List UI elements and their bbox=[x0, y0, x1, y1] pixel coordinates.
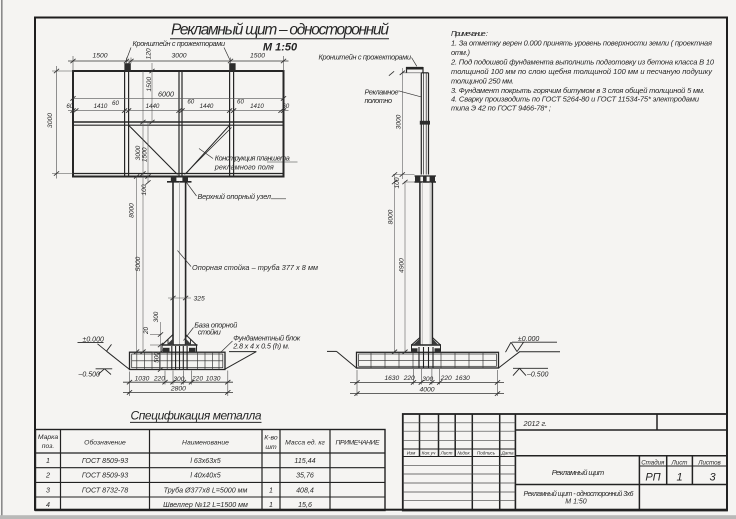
svg-text:220: 220 bbox=[153, 375, 165, 382]
svg-text:ГОСТ 8509-93: ГОСТ 8509-93 bbox=[82, 472, 128, 480]
svg-text:60: 60 bbox=[187, 99, 194, 106]
svg-text:115,44: 115,44 bbox=[294, 457, 315, 465]
svg-text:60: 60 bbox=[282, 103, 289, 110]
svg-text:15,6: 15,6 bbox=[298, 501, 312, 509]
svg-text:2800: 2800 bbox=[170, 386, 186, 393]
svg-text:Наименование: Наименование bbox=[182, 440, 229, 447]
svg-text:60: 60 bbox=[112, 100, 119, 107]
svg-text:Примечание :: Примечание : bbox=[451, 29, 488, 38]
svg-text:8000: 8000 bbox=[388, 209, 395, 224]
svg-text:1: 1 bbox=[676, 472, 682, 484]
svg-text:100: 100 bbox=[394, 177, 401, 188]
svg-text:Стадия: Стадия bbox=[641, 459, 665, 466]
svg-text:1500: 1500 bbox=[141, 147, 148, 162]
svg-text:100: 100 bbox=[141, 184, 148, 195]
svg-text:4000: 4000 bbox=[419, 387, 434, 394]
svg-text:1: 1 bbox=[46, 457, 50, 465]
svg-text:l 63х63х5: l 63х63х5 bbox=[190, 457, 220, 465]
svg-text:толщиной 250 мм.: толщиной 250 мм. bbox=[451, 76, 514, 85]
svg-text:3: 3 bbox=[46, 486, 50, 494]
svg-text:поз.: поз. bbox=[42, 443, 55, 450]
svg-text:1. За отметку верен 0.000 пр: 1. За отметку верен 0.000 принять уровен… bbox=[451, 38, 712, 47]
svg-text:3000: 3000 bbox=[47, 113, 54, 128]
svg-text:Спецификация металла: Спецификация металла bbox=[131, 409, 262, 423]
svg-text:2012 г.: 2012 г. bbox=[523, 419, 548, 428]
svg-text:№док: №док bbox=[457, 450, 470, 455]
svg-text:1: 1 bbox=[269, 486, 273, 494]
svg-text:1630: 1630 bbox=[384, 375, 399, 382]
svg-text:2. Под подошвой фундамента вып: 2. Под подошвой фундамента выполнить под… bbox=[450, 57, 715, 66]
svg-text:220: 220 bbox=[403, 375, 415, 382]
svg-text:300: 300 bbox=[422, 376, 433, 383]
svg-text:–0.500: –0.500 bbox=[78, 371, 101, 378]
svg-text:стойки: стойки bbox=[198, 327, 221, 336]
svg-text:Лист: Лист bbox=[440, 450, 453, 455]
svg-text:Рекламный щит – односторонни: Рекламный щит – односторонний bbox=[171, 22, 389, 39]
svg-text:толщиной 100 мм по слою щ: толщиной 100 мм по слою щебня толщиной 1… bbox=[451, 67, 713, 76]
svg-text:3: 3 bbox=[709, 472, 716, 484]
svg-text:Конструкция планшета: Конструкция планшета bbox=[215, 154, 290, 163]
svg-text:300: 300 bbox=[153, 311, 160, 322]
svg-text:220: 220 bbox=[191, 375, 203, 382]
svg-text:1630: 1630 bbox=[455, 375, 470, 382]
svg-text:Труба Ø377х8 L=5000 мм: Труба Ø377х8 L=5000 мм bbox=[164, 486, 248, 494]
svg-text:отм.): отм.) bbox=[451, 48, 471, 57]
svg-text:1030: 1030 bbox=[135, 375, 150, 382]
svg-text:6000: 6000 bbox=[158, 90, 174, 99]
svg-text:К-во: К-во bbox=[264, 435, 278, 442]
svg-text:1440: 1440 bbox=[146, 103, 160, 110]
svg-text:Швеллер №12 L=1500 мм: Швеллер №12 L=1500 мм bbox=[163, 501, 248, 509]
svg-text:Изм: Изм bbox=[407, 450, 416, 455]
svg-text:3000: 3000 bbox=[395, 114, 402, 129]
svg-text:2.8 х 4 х 0.5 (h) м.: 2.8 х 4 х 0.5 (h) м. bbox=[232, 341, 290, 350]
svg-text:1: 1 bbox=[269, 501, 273, 509]
svg-text:325: 325 bbox=[194, 296, 206, 303]
svg-text:3. Фундамент покрыть горячим: 3. Фундамент покрыть горячим битумом в 3… bbox=[451, 86, 705, 95]
svg-text:полотно: полотно bbox=[365, 96, 393, 105]
svg-text:20: 20 bbox=[143, 327, 150, 336]
svg-text:Марка: Марка bbox=[38, 434, 59, 441]
svg-text:Подпись: Подпись bbox=[477, 450, 496, 455]
svg-text:Кол.уч: Кол.уч bbox=[422, 450, 436, 455]
svg-text:рекламного поля: рекламного поля bbox=[214, 163, 274, 172]
svg-text:1500: 1500 bbox=[146, 77, 153, 92]
svg-text:шт: шт bbox=[265, 444, 277, 451]
svg-text:–0.500: –0.500 bbox=[526, 371, 549, 378]
svg-text:60: 60 bbox=[66, 103, 73, 110]
svg-text:2: 2 bbox=[45, 472, 50, 480]
svg-text:М 1:50: М 1:50 bbox=[263, 42, 298, 54]
svg-text:8000: 8000 bbox=[129, 203, 136, 218]
svg-text:120: 120 bbox=[145, 48, 152, 59]
svg-text:4. Сварку производить по ГО: 4. Сварку производить по ГОСТ 5264-80 и … bbox=[451, 95, 700, 104]
svg-text:500: 500 bbox=[153, 352, 160, 363]
svg-text:Рекламный щит - односторонний: Рекламный щит - односторонний 3х6 bbox=[524, 490, 634, 498]
svg-text:Верхний опорный узел: Верхний опорный узел bbox=[198, 192, 272, 201]
svg-text:220: 220 bbox=[440, 375, 452, 382]
svg-text:±0.000: ±0.000 bbox=[518, 336, 539, 343]
svg-text:Кронштейн с прожекторами: Кронштейн с прожекторами bbox=[319, 53, 412, 62]
svg-text:Кронштейн с прожекторами: Кронштейн с прожекторами bbox=[133, 39, 226, 48]
svg-text:ГОСТ 8732-78: ГОСТ 8732-78 bbox=[82, 486, 128, 494]
svg-text:1410: 1410 bbox=[250, 103, 264, 110]
svg-text:60: 60 bbox=[237, 99, 244, 106]
svg-text:300: 300 bbox=[173, 376, 184, 383]
svg-text:Опорная стойка – труба 377 х: Опорная стойка – труба 377 х 8 мм bbox=[192, 263, 318, 272]
svg-text:3000: 3000 bbox=[171, 53, 186, 60]
svg-text:35,76: 35,76 bbox=[296, 472, 314, 480]
svg-text:l 40х40х5: l 40х40х5 bbox=[190, 472, 220, 480]
svg-text:типа Э 42 по ГОСТ 9466-78: типа Э 42 по ГОСТ 9466-78* ; bbox=[451, 103, 551, 112]
svg-text:Обозначение: Обозначение bbox=[84, 439, 126, 447]
svg-text:5000: 5000 bbox=[135, 256, 142, 271]
svg-text:4: 4 bbox=[46, 501, 50, 509]
svg-text:Масса ед. кг: Масса ед. кг bbox=[285, 439, 325, 447]
svg-text:1030: 1030 bbox=[206, 375, 221, 382]
svg-text:Рекламный щит: Рекламный щит bbox=[552, 468, 605, 477]
svg-text:1500: 1500 bbox=[250, 53, 265, 60]
svg-text:±0.000: ±0.000 bbox=[83, 336, 104, 343]
svg-text:ПРИМЕЧАНИЕ: ПРИМЕЧАНИЕ bbox=[336, 440, 380, 447]
svg-text:1440: 1440 bbox=[200, 103, 214, 110]
svg-text:ГОСТ 8509-93: ГОСТ 8509-93 bbox=[82, 457, 128, 465]
svg-text:Дата: Дата bbox=[500, 450, 514, 455]
svg-text:Лист: Лист bbox=[671, 459, 688, 466]
svg-text:Листов: Листов bbox=[697, 459, 721, 466]
svg-text:РП: РП bbox=[645, 472, 660, 484]
svg-text:1500: 1500 bbox=[92, 53, 107, 60]
svg-text:408,4: 408,4 bbox=[296, 486, 314, 494]
svg-text:1410: 1410 bbox=[94, 103, 108, 110]
svg-text:4900: 4900 bbox=[398, 258, 405, 273]
svg-text:М 1:50: М 1:50 bbox=[565, 499, 587, 506]
